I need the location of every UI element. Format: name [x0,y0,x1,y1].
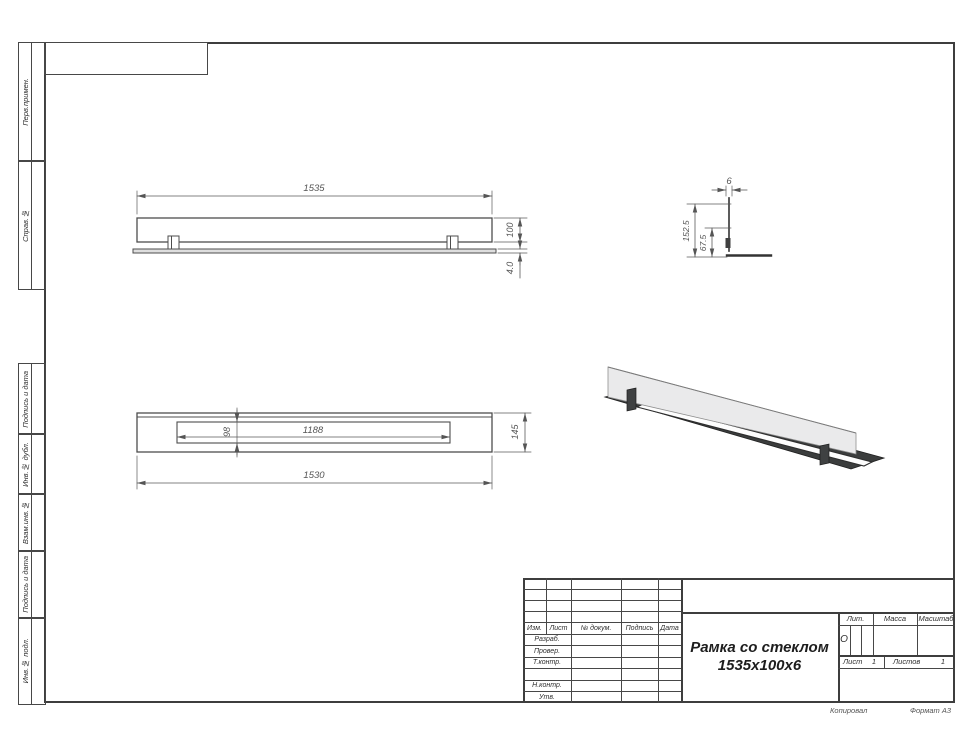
side-block-perv-primen: Перв.примен. [18,42,46,162]
titleblock-line [861,625,862,655]
side-label: Взам.инв.№ [21,501,30,544]
side-block-podpis-data-2: Подпись и дата [18,550,46,619]
doc-title-cell: Рамка со стеклом 1535x100x6 [683,612,836,712]
side-label: Перв.примен. [21,78,30,126]
side-block-inv-podl: Инв.№ подл. [18,617,46,705]
side-block-label-cell: Взам.инв.№ [19,494,32,551]
titleblock-line [523,578,955,580]
side-block-label-cell: Подпись и дата [19,551,32,618]
side-block-label-cell: Справ.№ [19,161,32,289]
titleblock-line [621,578,622,703]
titleblock-line [838,625,955,626]
col-n-dokum: № докум. [571,622,621,634]
side-block-label-cell: Подпись и дата [19,364,32,434]
lit-label: Лит. [838,612,873,625]
listov-label: Листов [890,655,933,668]
titleblock-line [850,625,851,655]
titleblock-line [523,600,681,601]
kopiroval-note: Копировал [830,706,867,715]
side-block-podpis-data-1: Подпись и дата [18,363,46,435]
col-izm: Изм. [523,622,546,634]
titleblock-line [658,578,659,703]
list-value: 1 [866,655,882,668]
titleblock-line [523,589,681,590]
masshtab-label: Масштаб [917,612,955,625]
side-block-label-cell: Перв.примен. [19,43,32,161]
side-label: Подпись и дата [21,556,30,613]
lit-value: О [838,625,850,655]
doc-title-line1: Рамка со стеклом [690,639,829,656]
row-tkontr: Т.контр. [523,657,571,668]
side-block-inv-dubl: Инв.№ дубл. [18,433,46,495]
drawing-sheet: 1535 100 4.0 6 [0,0,970,749]
col-data: Дата [658,622,681,634]
col-podpis: Подпись [621,622,658,634]
titleblock-line [523,611,681,612]
titleblock-line [523,668,681,669]
side-block-label-cell: Инв.№ подл. [19,618,32,704]
col-list: Лист [546,622,571,634]
row-prover: Провер. [523,645,571,657]
side-label: Справ.№ [21,209,30,242]
side-label: Инв.№ подл. [21,638,30,683]
row-razrab: Разраб. [523,634,571,645]
format-note: Формат А3 [910,706,951,715]
massa-label: Масса [873,612,917,625]
doc-title-line2: 1535x100x6 [718,657,801,674]
titleblock-line [838,668,955,669]
doc-number-stamp [44,42,208,75]
side-label: Инв.№ дубл. [21,442,30,487]
side-block-label-cell: Инв.№ дубл. [19,434,32,494]
sheet-frame [44,42,955,703]
row-nkontr: Н.контр. [523,680,571,691]
row-utv: Утв. [523,691,571,703]
titleblock-line [571,578,572,703]
listov-value: 1 [934,655,952,668]
side-label: Подпись и дата [21,371,30,428]
side-block-vzam-inv: Взам.инв.№ [18,493,46,552]
side-block-sprav-no: Справ.№ [18,160,46,290]
